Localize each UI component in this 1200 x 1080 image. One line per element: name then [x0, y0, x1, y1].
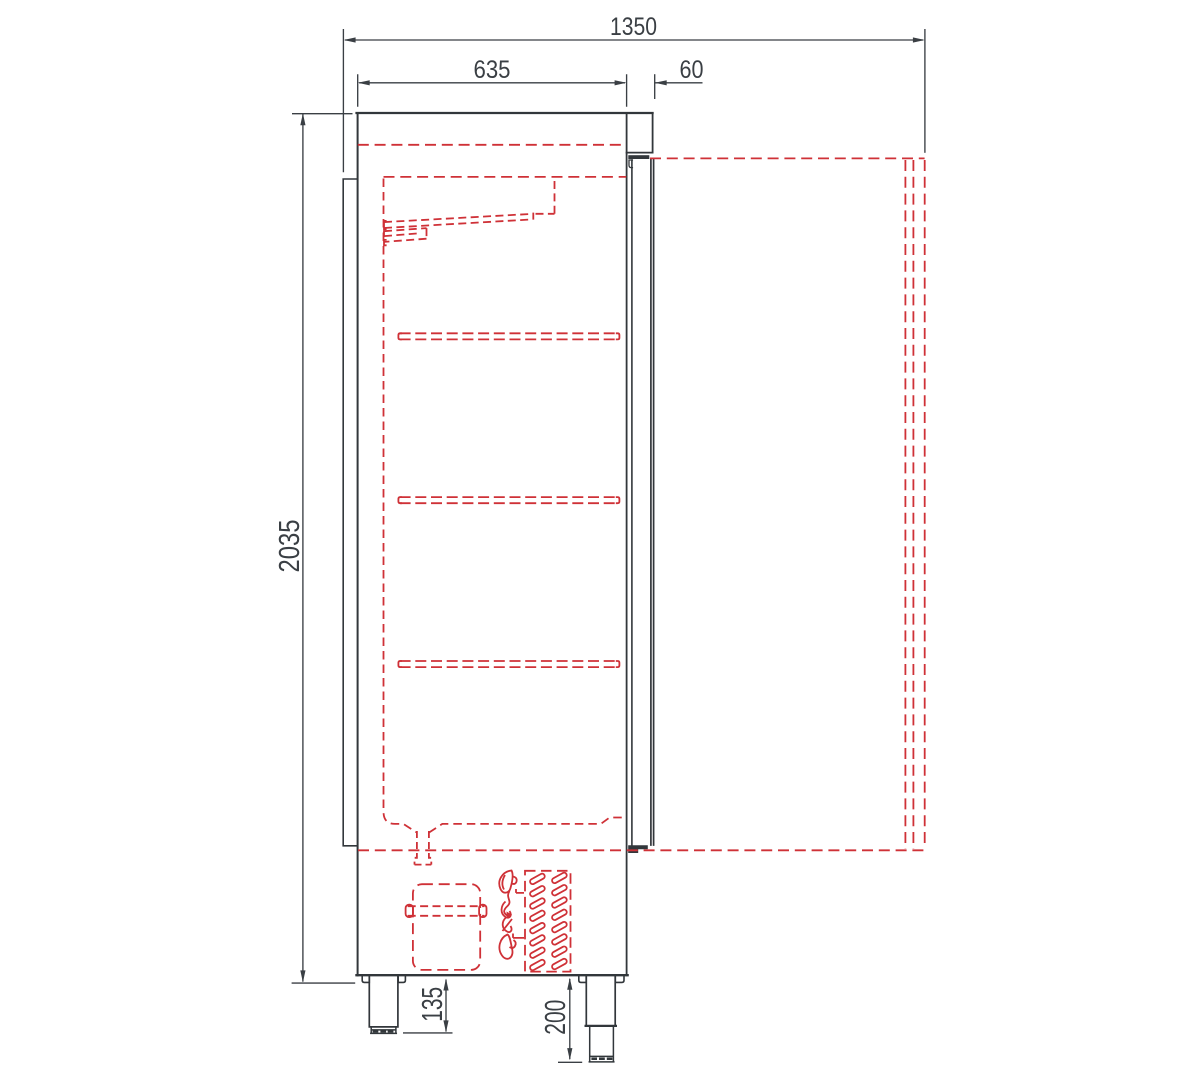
svg-text:60: 60	[680, 56, 704, 84]
svg-text:135: 135	[417, 987, 449, 1022]
svg-text:635: 635	[474, 56, 511, 84]
svg-text:1350: 1350	[610, 13, 657, 41]
svg-text:200: 200	[540, 1000, 572, 1035]
svg-text:2035: 2035	[274, 520, 306, 573]
